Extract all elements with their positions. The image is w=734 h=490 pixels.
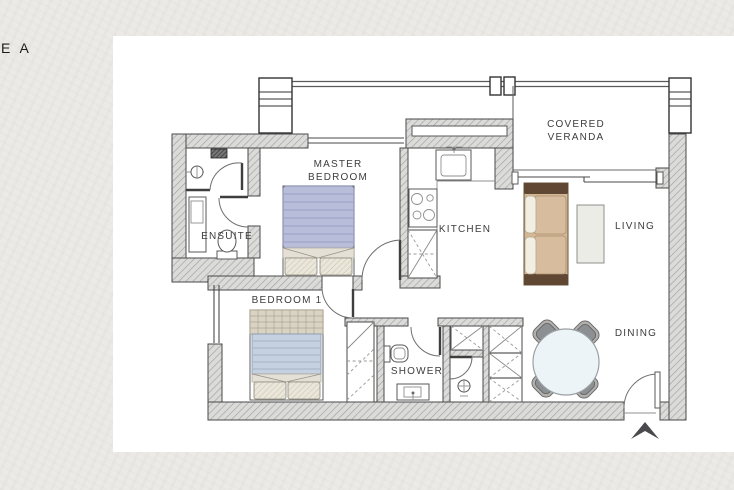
master-bed [283,186,354,276]
shower-room-door [411,327,440,356]
master-pillow-left [285,258,317,275]
window-bedroom-1 [214,285,219,343]
page-background: E A [0,0,734,490]
room-label-covered-veranda-line1: COVERED [547,119,605,130]
room-label-bedroom-1: BEDROOM 1 [252,295,323,306]
entrance-arrow-icon [631,422,659,439]
kitchen-counter [437,181,495,230]
ensuite-shower-head-icon [186,166,204,178]
stove [409,189,437,227]
dining-table [533,329,599,395]
dining-set [529,317,602,401]
sofa [524,183,568,285]
kitchen-sink [436,146,471,180]
wardrobe-bedroom1 [347,322,374,402]
window-master-bedroom [308,138,404,143]
column-right [669,78,691,133]
bath-shower-head-icon [457,379,471,396]
shower-toilet [384,345,408,362]
entrance-door [624,372,660,413]
ensuite-shower-door [210,163,242,190]
bed1-pillow-left [254,382,286,399]
window-living-sliding [512,172,663,184]
bedroom1-bed [250,310,323,400]
room-label-master-bedroom-line2: BEDROOM [308,172,368,183]
room-label-covered-veranda-line2: VERANDA [548,132,605,143]
floor-plan: MASTER BEDROOM ENSUITE BEDROOM 1 KITCHEN… [0,0,734,490]
bedroom1-door [322,288,353,318]
room-label-living: LIVING [615,221,655,232]
sofa-pillow [525,196,536,233]
shower-vanity [397,384,429,400]
ensuite-entry-door [219,197,248,227]
column-mid-1 [490,77,501,95]
faucet-icon [452,147,455,150]
coffee-table [577,205,604,263]
room-label-shower: SHOWER [391,366,443,377]
ensuite-niche [211,149,227,158]
closet-hall [451,326,483,350]
room-label-kitchen: KITCHEN [439,224,491,235]
room-label-ensuite: ENSUITE [201,231,253,242]
balcony-railing [292,82,669,87]
kitchen-window-niche [412,126,507,136]
kitchen-tall-cabinet [408,230,437,278]
closet-column [489,326,522,402]
sofa-pillow [525,237,536,274]
tap-icon [412,392,415,395]
room-label-dining: DINING [615,328,657,339]
column-left [259,78,292,133]
bed1-pillow-right [288,382,320,399]
master-bedroom-door [362,240,400,280]
ensuite-vanity [189,197,206,252]
master-pillow-right [320,258,352,275]
room-label-master-bedroom-line1: MASTER [314,159,363,170]
bath-stall-door [450,357,472,379]
